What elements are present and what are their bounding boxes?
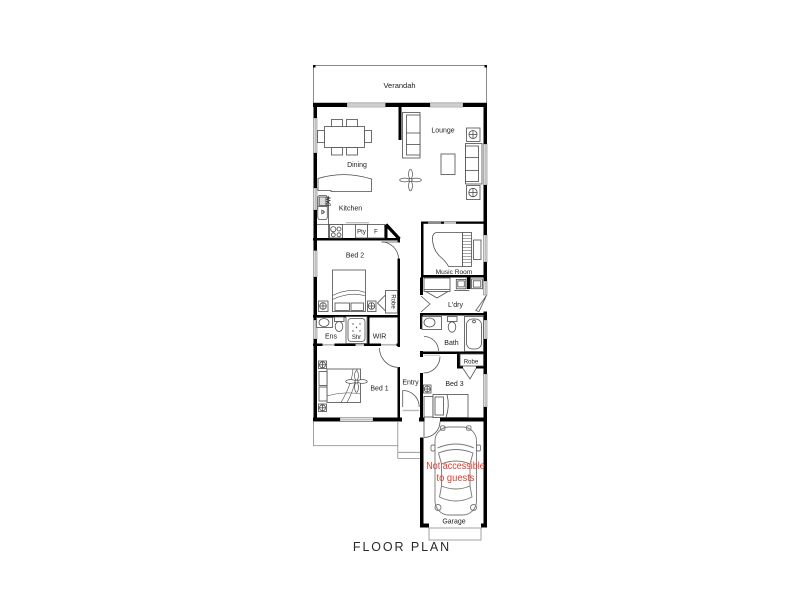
svg-text:Bath: Bath [444, 340, 459, 347]
svg-text:Pty: Pty [357, 230, 366, 236]
svg-text:Dining: Dining [347, 162, 367, 169]
svg-text:Bed 1: Bed 1 [370, 386, 388, 393]
svg-text:Bed 2: Bed 2 [346, 253, 364, 260]
svg-text:WIR: WIR [373, 334, 387, 341]
svg-text:Garage: Garage [442, 519, 465, 526]
svg-text:Entry: Entry [402, 380, 419, 387]
svg-text:DW: DW [327, 196, 333, 206]
svg-text:to guests: to guests [437, 473, 475, 484]
svg-text:Lounge: Lounge [431, 128, 454, 135]
svg-text:FLOOR PLAN: FLOOR PLAN [353, 540, 451, 554]
svg-text:F: F [374, 230, 378, 236]
svg-text:Robe: Robe [390, 294, 396, 309]
svg-text:Not accessible: Not accessible [426, 461, 485, 472]
svg-text:Ens: Ens [325, 334, 338, 341]
svg-text:L'dry: L'dry [448, 302, 463, 309]
svg-text:Shr: Shr [352, 335, 361, 341]
svg-text:Bed 3: Bed 3 [445, 381, 463, 388]
svg-text:Kitchen: Kitchen [339, 206, 362, 213]
svg-text:Verandah: Verandah [383, 81, 415, 90]
svg-text:Robe: Robe [464, 360, 479, 366]
svg-text:Music Room: Music Room [436, 269, 473, 276]
